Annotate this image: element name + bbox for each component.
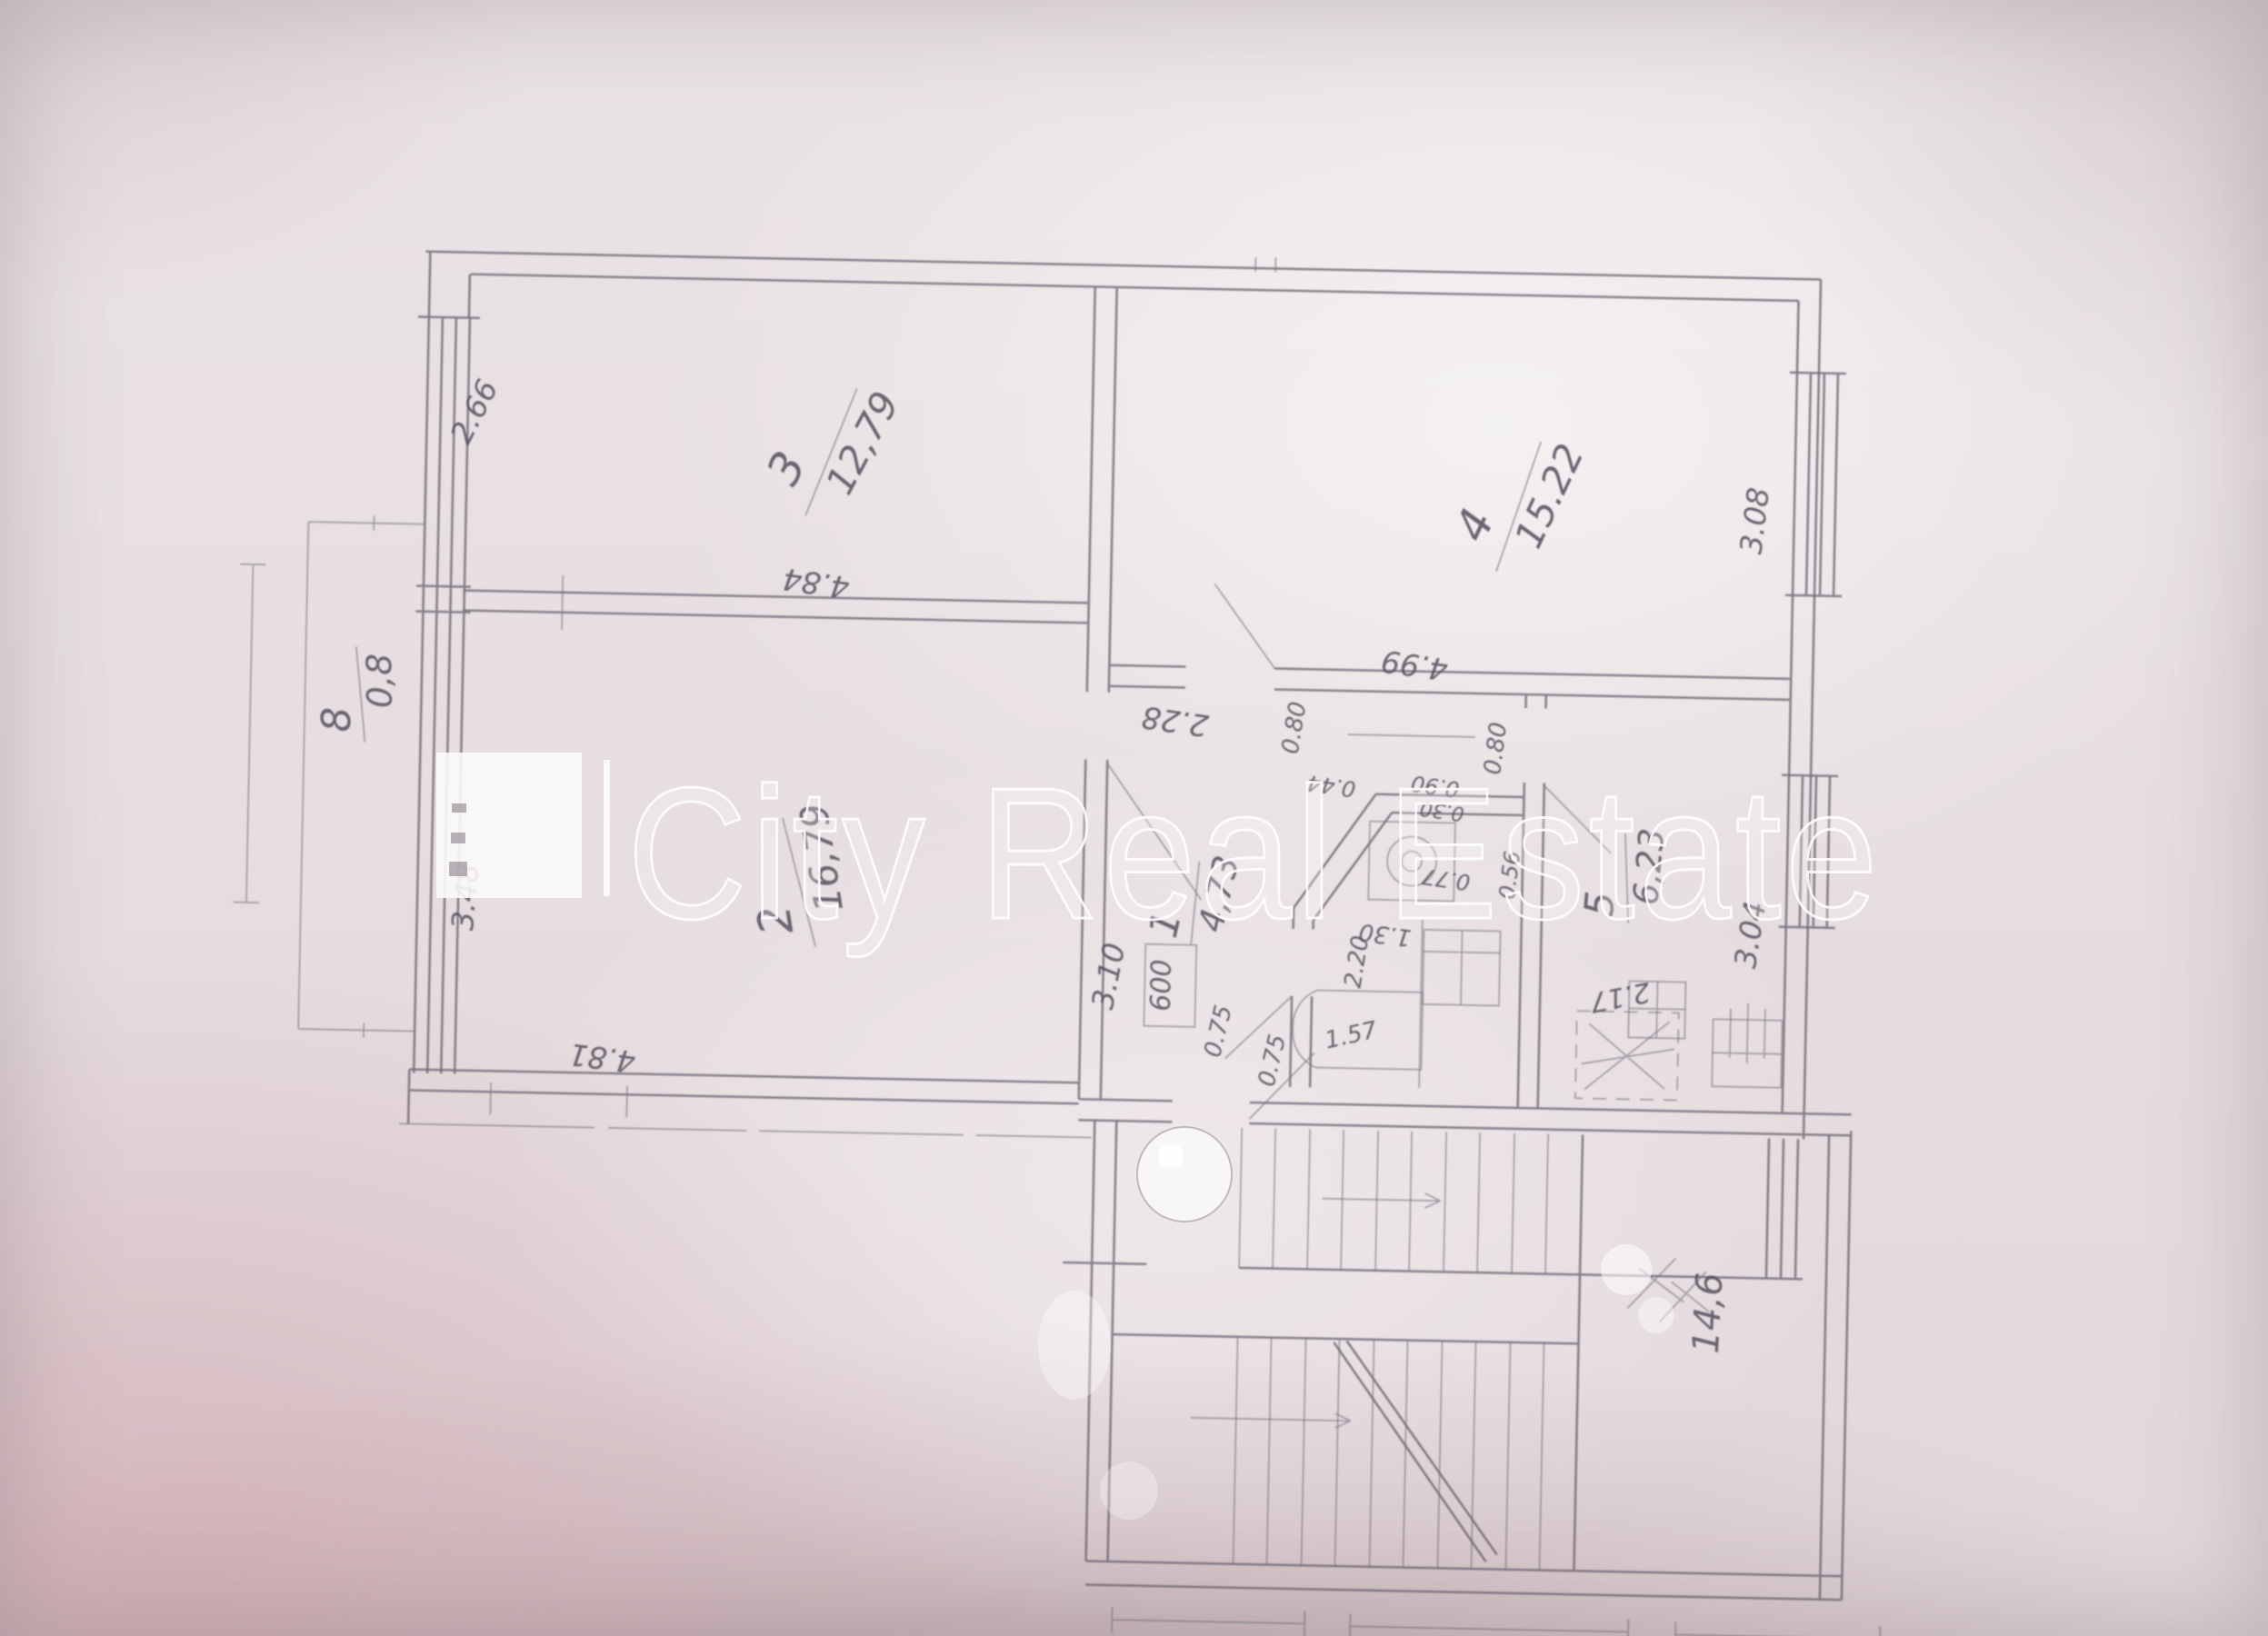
dim-room3-width: 4.84 <box>781 561 852 605</box>
stair-treads-lower <box>1234 1337 1544 1571</box>
balcony-outline <box>231 514 425 1039</box>
floor-plan-drawing: 3 12,79 4 15.22 2 16,79 8 0,8 <box>0 0 2268 1636</box>
dim-closet: 600 <box>1145 959 1178 1012</box>
dim-room3-depth: 2.66 <box>443 374 505 449</box>
room-4-label: 4 15.22 <box>1437 412 1593 587</box>
dimension-ticks <box>399 240 1484 1144</box>
room-3-label: 3 12,79 <box>748 356 908 534</box>
room-8-label: 8 0,8 <box>313 646 401 743</box>
dim-room4-width: 4.99 <box>1379 643 1450 688</box>
svg-text:12,79: 12,79 <box>817 384 908 502</box>
bottom-dimension-lines <box>1112 1607 1880 1636</box>
svg-text:0,8: 0,8 <box>359 653 400 708</box>
stair-direction-arrows <box>1191 1189 1441 1430</box>
stair-area-label: 14,6 <box>1685 1272 1732 1354</box>
svg-text:8: 8 <box>314 706 360 733</box>
dim-corridor: 2.28 <box>1140 699 1211 743</box>
dim-door-2: 0.80 <box>1277 700 1313 756</box>
dim-tub-length: 1.57 <box>1323 1016 1381 1054</box>
floor-plan-photo: 3 12,79 4 15.22 2 16,79 8 0,8 <box>0 0 2268 1636</box>
watermark: City Real Estate <box>436 749 1882 958</box>
dim-kitchen-width: 2.17 <box>1587 975 1653 1018</box>
watermark-separator-bar <box>604 760 610 896</box>
dim-room4-depth: 3.08 <box>1733 485 1776 556</box>
stair-treads-upper <box>1239 1128 1548 1274</box>
svg-text:4: 4 <box>1444 501 1504 549</box>
radiator <box>1712 1003 1783 1088</box>
watermark-text: City Real Estate <box>627 749 1882 958</box>
svg-text:15.22: 15.22 <box>1506 437 1593 555</box>
vent-shaft <box>1575 1011 1679 1100</box>
walls <box>408 252 1868 1153</box>
dim-room2-width: 4.81 <box>567 1036 638 1080</box>
svg-text:3: 3 <box>756 443 816 493</box>
